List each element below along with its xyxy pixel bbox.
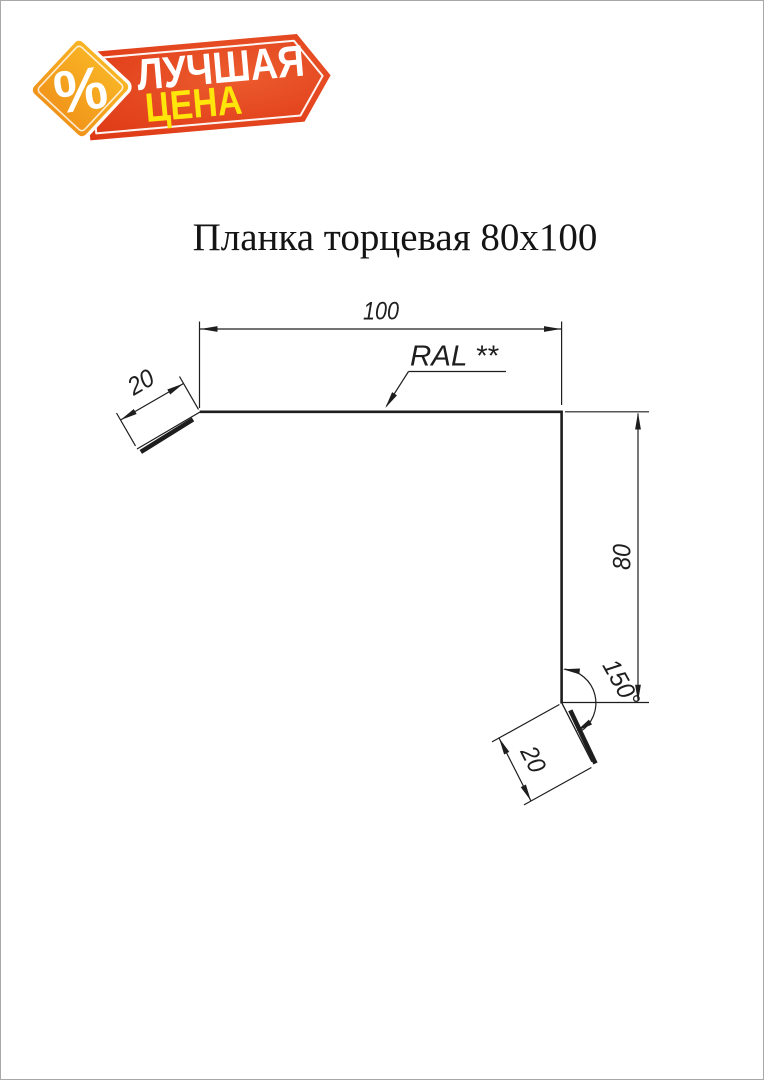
profile-left-hem xyxy=(141,419,193,452)
dim-text-height: 80 xyxy=(609,544,637,570)
dim-arrow-icon xyxy=(562,666,580,674)
ext-line-20B-1 xyxy=(492,705,559,742)
dim-arrow-icon xyxy=(201,326,218,332)
dim-text-bottom-hem: 20 xyxy=(514,741,551,778)
dim-arrow-icon xyxy=(521,785,534,803)
leader-arrow-icon xyxy=(383,392,397,409)
dim-arrow-icon xyxy=(635,413,641,430)
dim-arrow-icon xyxy=(119,409,137,423)
product-image-page: ЛУЧШАЯ ЦЕНА % Планка торцевая 80х100 100 xyxy=(0,0,764,1080)
profile-left-flange-line xyxy=(137,412,200,449)
dim-text-left-hem: 20 xyxy=(122,364,159,402)
ext-line-20L-1 xyxy=(180,377,199,410)
technical-drawing: 100 80 20 150° 20 RAL ** xyxy=(1,1,764,1080)
angle-arc xyxy=(564,669,596,732)
dim-arrow-icon xyxy=(167,381,185,395)
dim-text-top-width: 100 xyxy=(363,298,399,326)
coating-label: RAL ** xyxy=(410,341,500,373)
dim-arrow-icon xyxy=(496,737,509,755)
dim-arrow-icon xyxy=(544,326,561,332)
profile-bottom-flange-line xyxy=(562,703,592,762)
